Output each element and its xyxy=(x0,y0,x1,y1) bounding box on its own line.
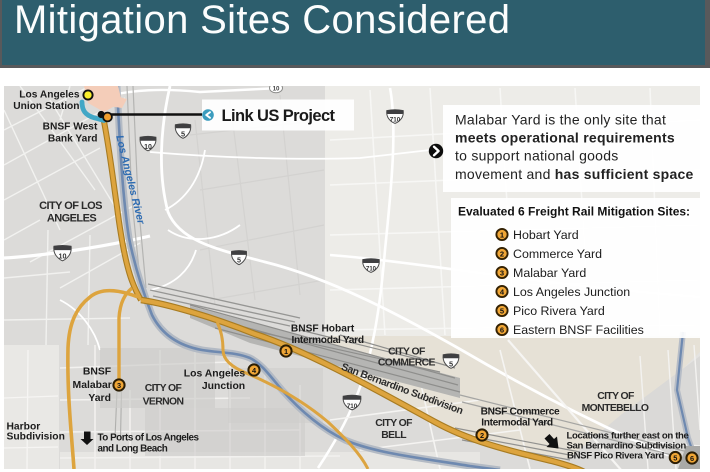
svg-text:2: 2 xyxy=(500,249,504,258)
svg-text:Intermodal Yard: Intermodal Yard xyxy=(291,335,363,346)
svg-text:2: 2 xyxy=(480,431,484,440)
svg-text:5: 5 xyxy=(673,454,677,463)
svg-text:710: 710 xyxy=(347,403,358,410)
svg-text:Malabar: Malabar xyxy=(73,380,112,391)
svg-text:CITY OF: CITY OF xyxy=(145,383,182,394)
svg-text:6: 6 xyxy=(500,325,504,334)
svg-text:5: 5 xyxy=(449,359,453,368)
svg-text:Subdivision: Subdivision xyxy=(7,432,65,443)
svg-text:Evaluated 6 Freight Rail Mitig: Evaluated 6 Freight Rail Mitigation Site… xyxy=(458,205,690,219)
svg-text:VERNON: VERNON xyxy=(143,397,184,408)
svg-text:COMMERCE: COMMERCE xyxy=(378,357,436,368)
svg-text:10: 10 xyxy=(144,144,152,151)
svg-text:Bank Yard: Bank Yard xyxy=(48,133,98,144)
svg-text:MONTEBELLO: MONTEBELLO xyxy=(582,403,649,414)
svg-text:BNSF Hobart: BNSF Hobart xyxy=(291,324,355,335)
svg-text:CITY OF: CITY OF xyxy=(388,347,425,358)
svg-text:Link US Project: Link US Project xyxy=(222,107,336,125)
svg-text:Union Station: Union Station xyxy=(13,101,79,112)
svg-text:BNSF West: BNSF West xyxy=(43,122,98,133)
svg-text:5: 5 xyxy=(181,129,185,138)
svg-text:to support national goods: to support national goods xyxy=(455,148,618,164)
svg-text:3: 3 xyxy=(117,381,121,390)
svg-text:10: 10 xyxy=(273,86,280,93)
svg-text:Commerce Yard: Commerce Yard xyxy=(513,247,602,261)
svg-text:10: 10 xyxy=(59,252,67,261)
svg-text:Los Angeles: Los Angeles xyxy=(19,90,80,101)
svg-text:CITY OF: CITY OF xyxy=(375,418,412,429)
svg-text:and Long Beach: and Long Beach xyxy=(98,444,168,455)
svg-text:ANGELES: ANGELES xyxy=(47,212,97,224)
svg-text:5: 5 xyxy=(237,256,241,265)
svg-text:movement and has sufficient sp: movement and has sufficient space xyxy=(455,166,694,182)
svg-text:Yard: Yard xyxy=(88,393,111,404)
svg-text:BNSF Commerce: BNSF Commerce xyxy=(481,407,560,418)
svg-text:BNSF Pico Rivera Yard: BNSF Pico Rivera Yard xyxy=(567,451,664,462)
svg-text:Los Angeles Junction: Los Angeles Junction xyxy=(513,285,630,299)
svg-text:Junction: Junction xyxy=(202,381,245,392)
svg-text:Malabar Yard is the only site: Malabar Yard is the only site that xyxy=(455,112,666,128)
svg-text:To Ports of Los Angeles: To Ports of Los Angeles xyxy=(98,433,200,444)
svg-text:1: 1 xyxy=(284,347,288,356)
svg-text:710: 710 xyxy=(366,267,377,273)
svg-text:Eastern BNSF Facilities: Eastern BNSF Facilities xyxy=(513,323,644,337)
svg-text:6: 6 xyxy=(690,454,694,463)
svg-text:CITY OF LOS: CITY OF LOS xyxy=(39,200,102,212)
svg-text:BELL: BELL xyxy=(381,430,407,441)
svg-text:Malabar Yard: Malabar Yard xyxy=(513,266,586,280)
svg-text:meets operational requirements: meets operational requirements xyxy=(455,130,675,146)
svg-text:BNSF: BNSF xyxy=(83,366,111,377)
svg-text:Los Angeles: Los Angeles xyxy=(184,368,246,379)
svg-text:CITY OF: CITY OF xyxy=(597,391,634,402)
svg-text:3: 3 xyxy=(500,268,504,277)
svg-text:710: 710 xyxy=(390,117,401,124)
svg-text:Hobart Yard: Hobart Yard xyxy=(513,228,579,242)
svg-text:Pico Rivera Yard: Pico Rivera Yard xyxy=(513,304,605,318)
svg-text:Intermodal Yard: Intermodal Yard xyxy=(481,417,553,428)
